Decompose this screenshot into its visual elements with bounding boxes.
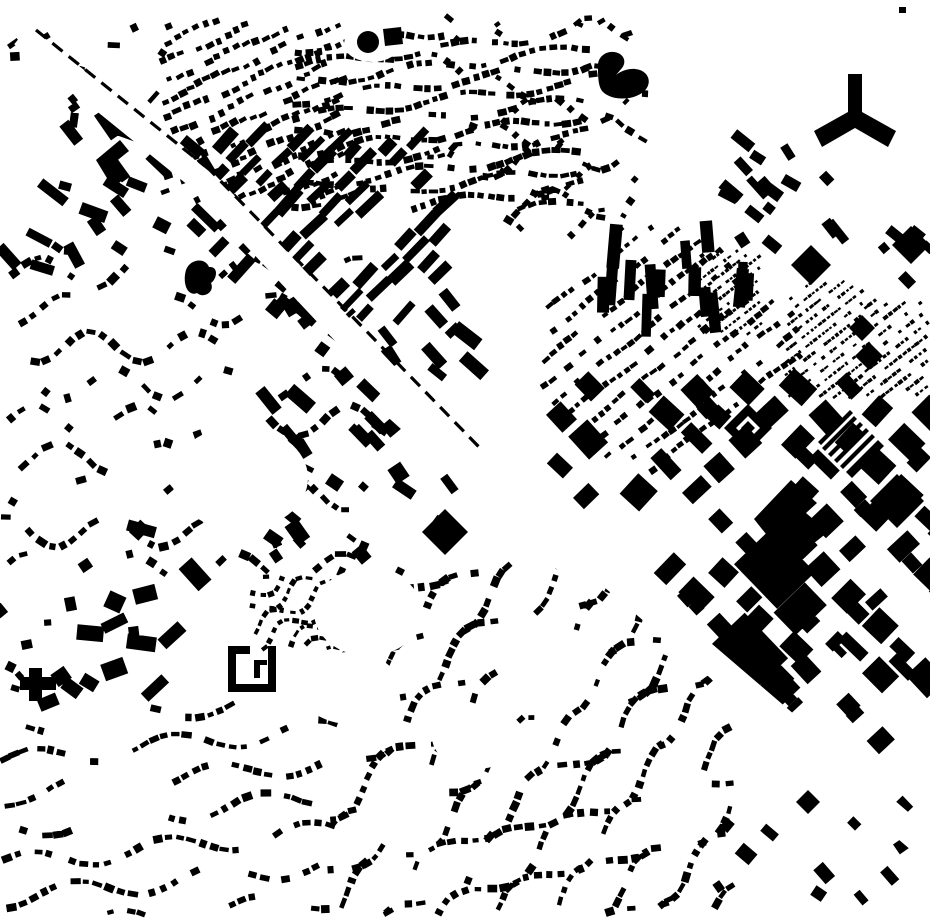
figure-ground-svg: [0, 0, 930, 924]
figure-ground-map: [0, 0, 930, 924]
